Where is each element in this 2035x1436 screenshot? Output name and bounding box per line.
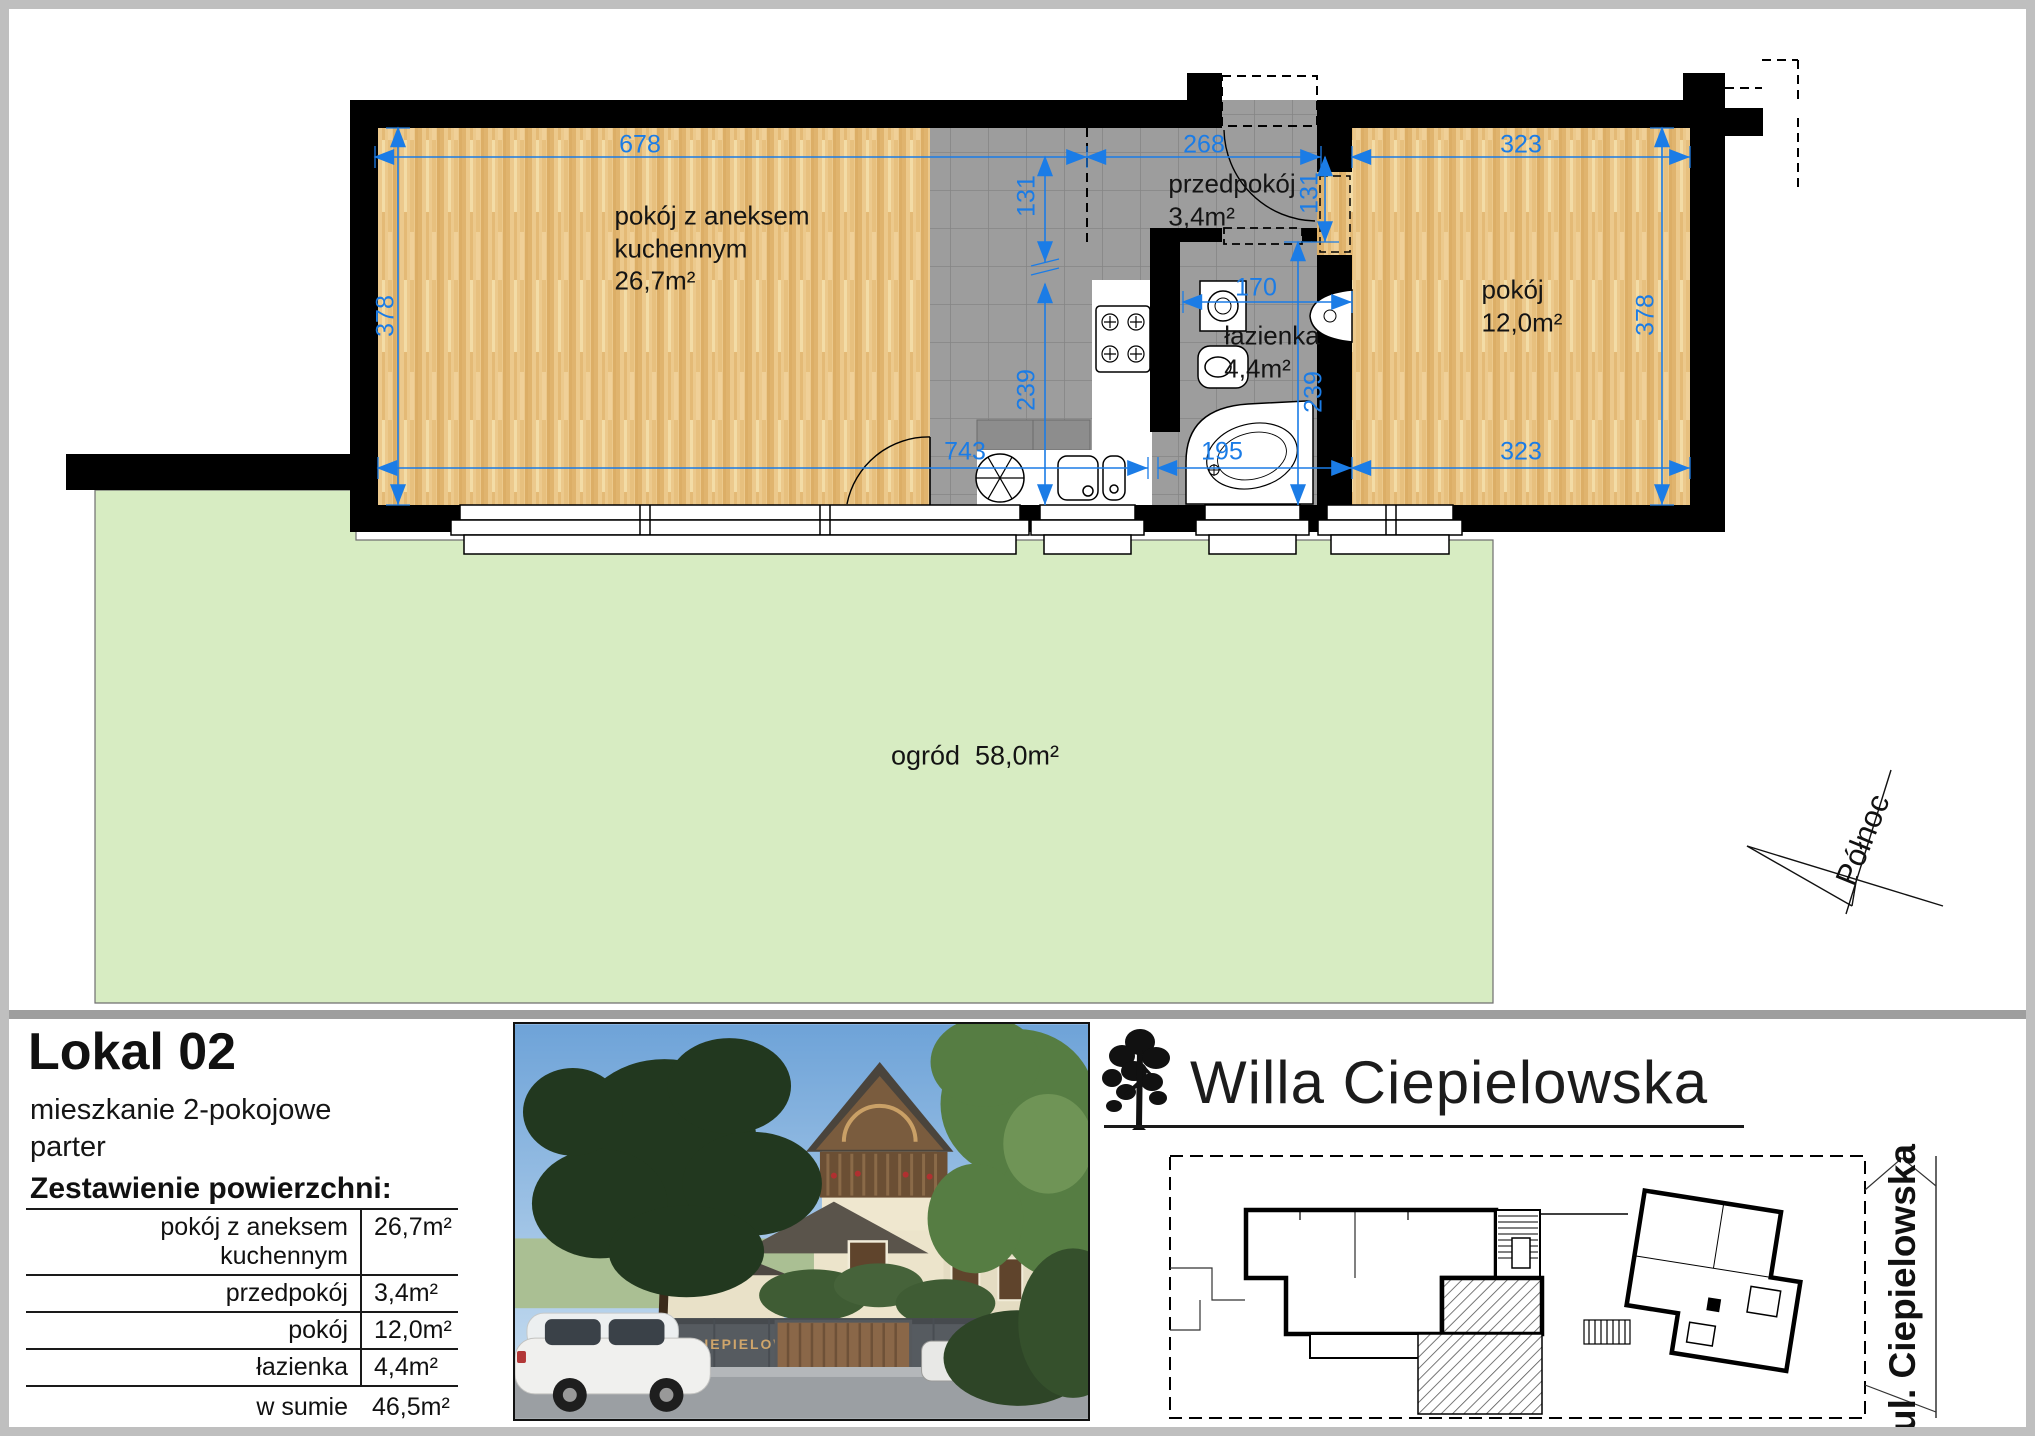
table-row: łazienka 4,4m² (26, 1350, 458, 1387)
dim-bedroom-width-top: 323 (1500, 131, 1542, 160)
row-label: przedpokój (26, 1276, 360, 1311)
site-plan-garden-highlight (1418, 1334, 1542, 1414)
table-row: przedpokój 3,4m² (26, 1276, 458, 1313)
table-summary-row: w sumie 46,5m² (26, 1387, 458, 1422)
dim-bedroom-width-bottom: 323 (1500, 438, 1542, 467)
site-plan-unit-highlight (1442, 1278, 1542, 1334)
row-label: pokój z aneksem kuchennym (26, 1210, 360, 1274)
dim-hall-depth-right: 131 (1296, 172, 1325, 214)
dim-hall-width-top: 268 (1183, 131, 1225, 160)
floor-plan-drawing (0, 0, 2035, 1012)
dim-living-height: 378 (372, 295, 401, 337)
dim-living-width-bottom: 743 (944, 438, 986, 467)
unit-subtitle-floor: parter (30, 1131, 106, 1164)
unit-title: Lokal 02 (28, 1022, 236, 1082)
room-label-bedroom: pokój 12,0m² (1482, 274, 1563, 339)
row-label: pokój (26, 1313, 360, 1348)
row-value: 26,7m² (360, 1210, 458, 1274)
row-label: łazienka (26, 1350, 360, 1385)
room-label-living: pokój z aneksem kuchennym 26,7m² (614, 199, 809, 297)
logo-tree-icon (1098, 1026, 1186, 1132)
table-row: pokój 12,0m² (26, 1313, 458, 1350)
kitchen-sink-icon (1058, 456, 1125, 500)
row-value: 12,0m² (360, 1313, 458, 1348)
logo-text: Willa Ciepielowska (1190, 1048, 1708, 1117)
street-label: ul. Ciepielowska (1882, 1144, 1924, 1432)
dim-bath-depth: 239 (1300, 371, 1329, 413)
row-label: w sumie (26, 1387, 360, 1422)
building-photo: CIEPIELOWSKA 10 (513, 1022, 1090, 1421)
section-divider (0, 1010, 2035, 1019)
floor-plan-sheet: pokój z aneksem kuchennym 26,7m² przedpo… (0, 0, 2035, 1436)
dim-kitchen-depth: 239 (1013, 369, 1042, 411)
row-value: 4,4m² (360, 1350, 458, 1385)
dim-bedroom-height: 378 (1632, 294, 1661, 336)
area-table: pokój z aneksem kuchennym 26,7m² przedpo… (26, 1208, 458, 1436)
row-value: 3,4m² (360, 1276, 458, 1311)
area-table-title: Zestawienie powierzchni: (30, 1172, 392, 1206)
table-row: pokój z aneksem kuchennym 26,7m² (26, 1208, 458, 1276)
garden-label: ogród 58,0m² (891, 741, 1059, 772)
row-value: 46,5m² (360, 1387, 458, 1422)
dim-bath-width-top: 170 (1235, 274, 1277, 303)
unit-subtitle-type: mieszkanie 2-pokojowe (30, 1094, 331, 1127)
logo-underline (1104, 1125, 1744, 1128)
garden-area (95, 490, 1493, 1003)
dim-hall-depth-left: 131 (1013, 175, 1042, 217)
dim-bath-width-bottom: 195 (1201, 438, 1243, 467)
dim-living-width-top: 678 (619, 131, 661, 160)
room-label-hall: przedpokój 3,4m² (1168, 168, 1295, 233)
